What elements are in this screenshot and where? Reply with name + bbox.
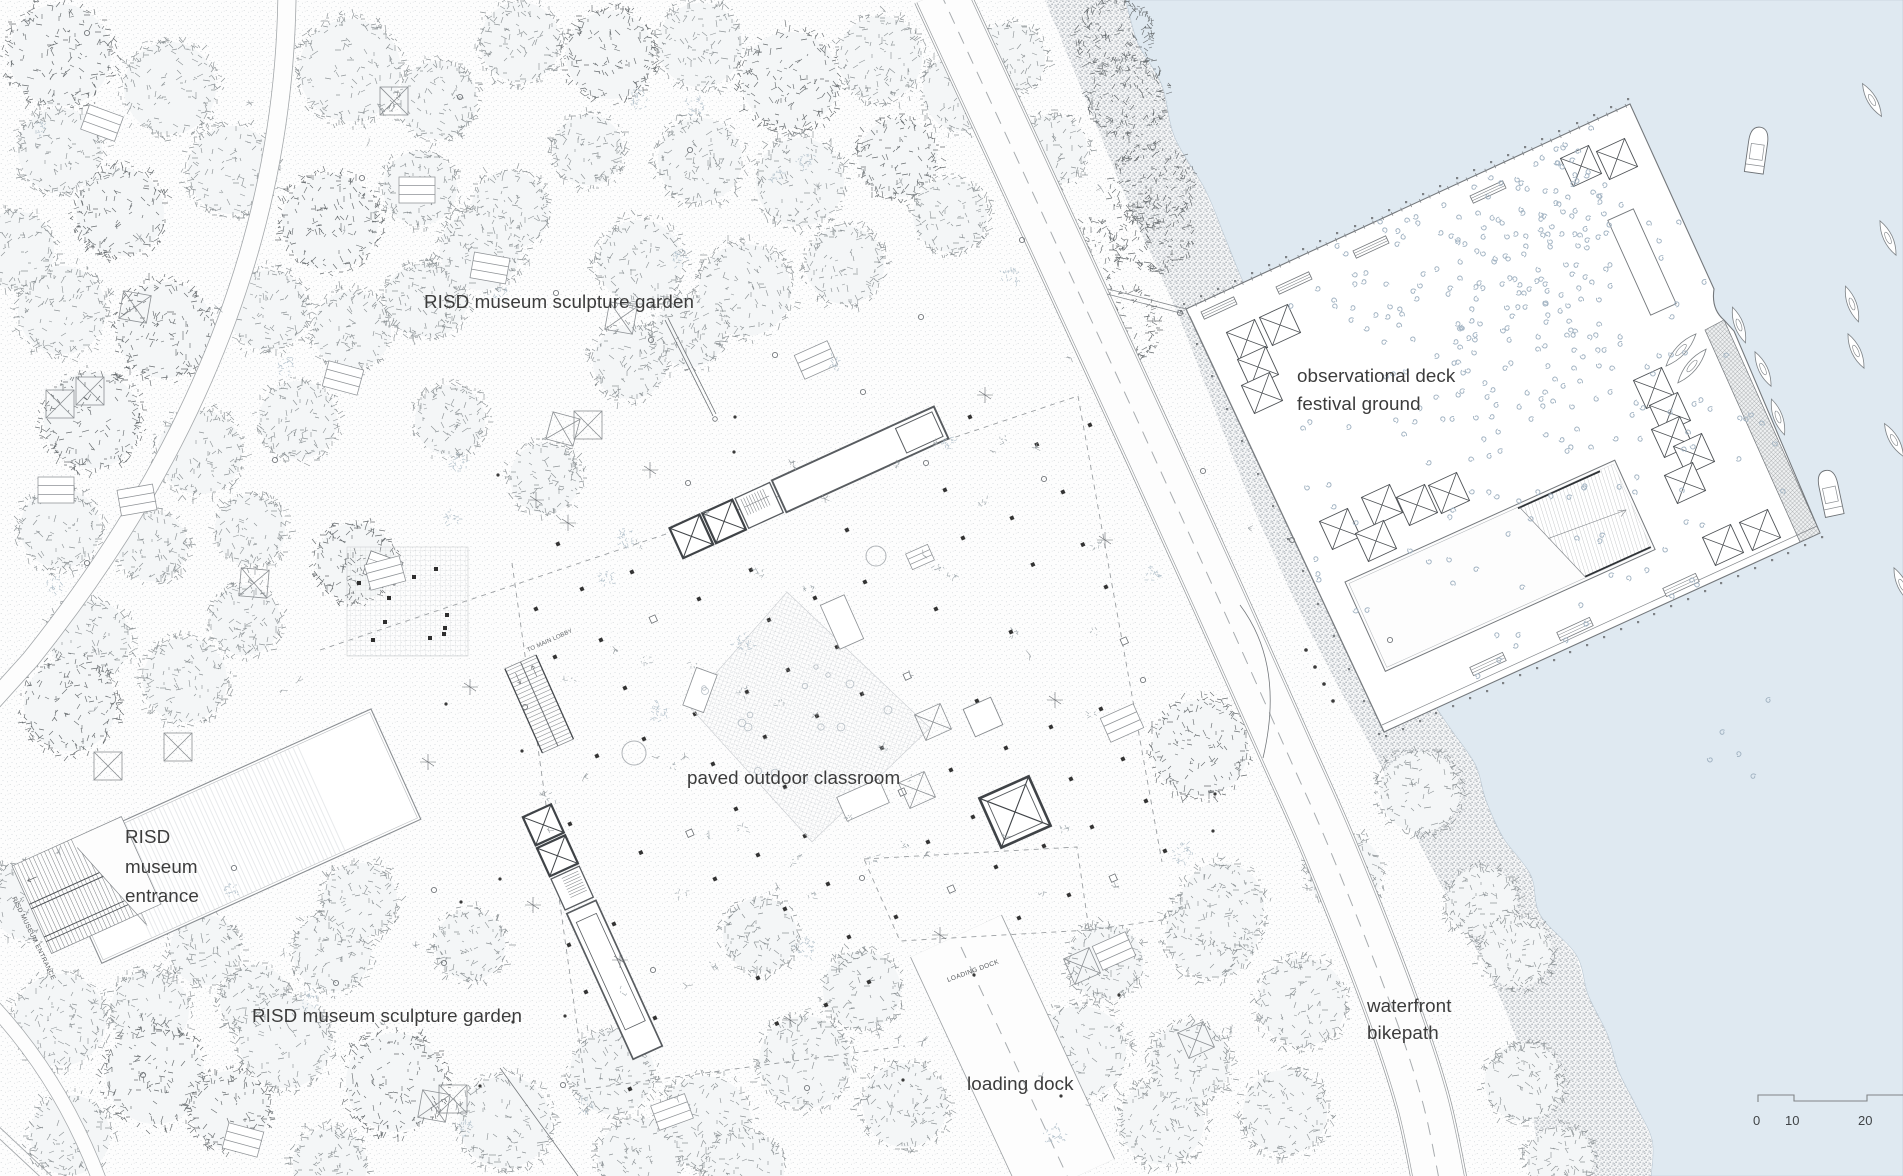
svg-text:RISD museum sculpture garden: RISD museum sculpture garden <box>252 1005 522 1026</box>
svg-text:loading dock: loading dock <box>967 1073 1074 1094</box>
svg-text:festival ground: festival ground <box>1297 393 1421 414</box>
svg-text:paved outdoor classroom: paved outdoor classroom <box>687 767 900 788</box>
svg-text:10: 10 <box>1785 1113 1799 1128</box>
svg-text:0: 0 <box>1753 1113 1760 1128</box>
svg-text:bikepath: bikepath <box>1367 1022 1439 1043</box>
svg-text:observational deck: observational deck <box>1297 365 1456 386</box>
svg-text:museum: museum <box>125 856 198 877</box>
svg-text:waterfront: waterfront <box>1366 995 1452 1016</box>
svg-text:20: 20 <box>1858 1113 1872 1128</box>
svg-text:RISD museum sculpture garden: RISD museum sculpture garden <box>424 291 694 312</box>
svg-text:RISD: RISD <box>125 826 170 847</box>
svg-text:entrance: entrance <box>125 885 199 906</box>
